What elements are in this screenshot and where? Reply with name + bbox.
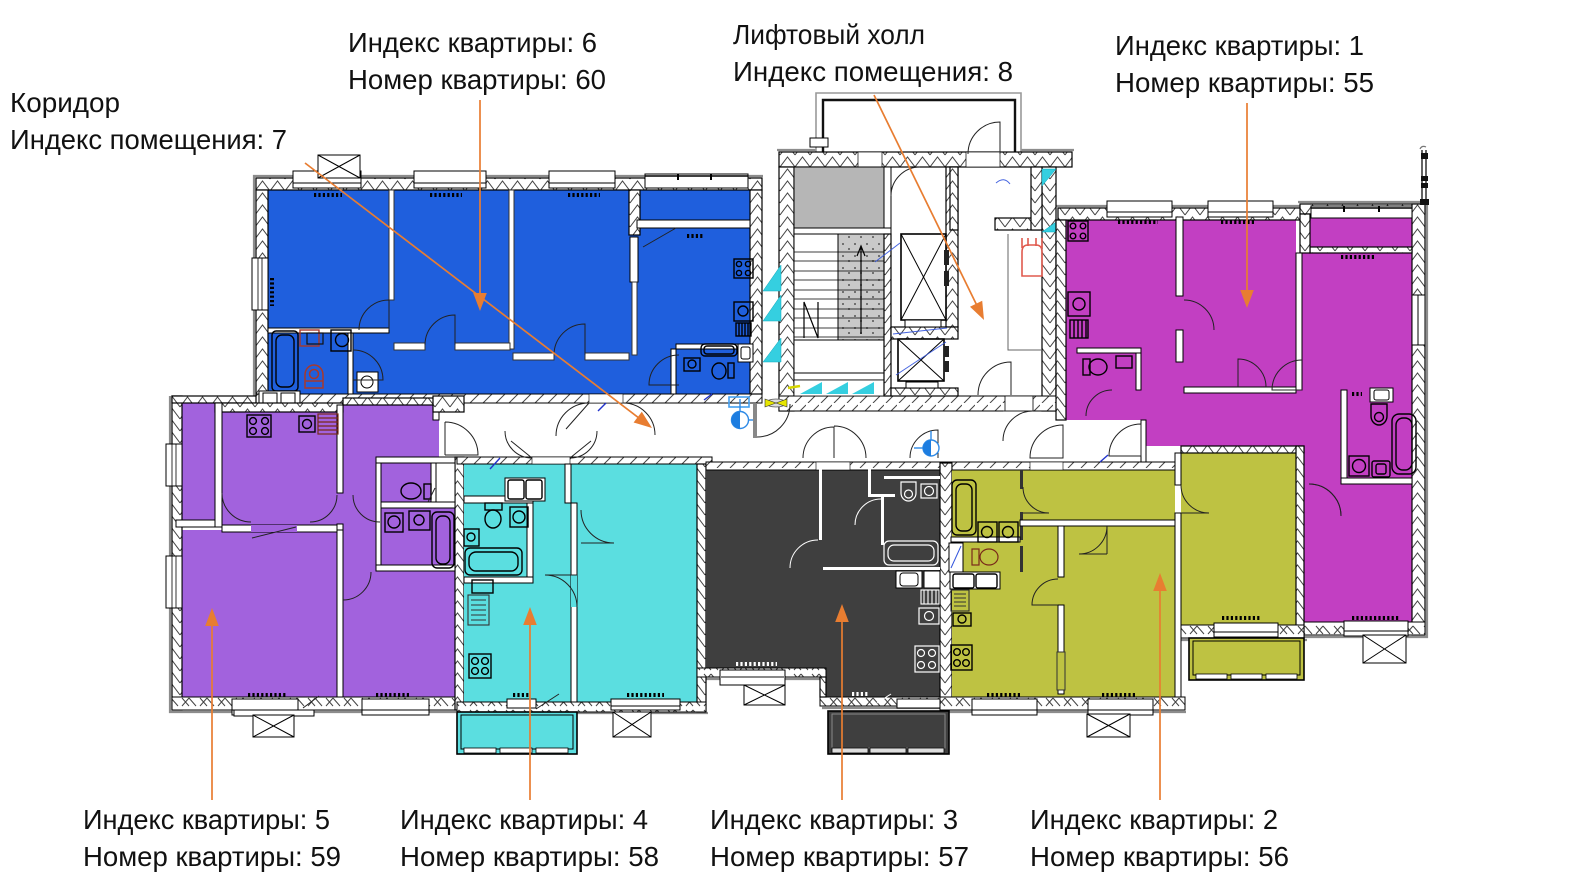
- svg-text:Индекс квартиры: 1: Индекс квартиры: 1: [1115, 30, 1364, 61]
- svg-text:Индекс квартиры: 2: Индекс квартиры: 2: [1030, 804, 1278, 835]
- svg-text:Номер квартиры: 58: Номер квартиры: 58: [400, 841, 659, 872]
- svg-text:Номер квартиры: 59: Номер квартиры: 59: [83, 841, 341, 872]
- svg-text:Лифтовый холл: Лифтовый холл: [733, 19, 925, 50]
- svg-text:Номер квартиры: 60: Номер квартиры: 60: [348, 64, 606, 95]
- svg-text:Индекс квартиры: 5: Индекс квартиры: 5: [83, 804, 330, 835]
- svg-text:Коридор: Коридор: [10, 87, 120, 118]
- svg-text:Индекс помещения: 7: Индекс помещения: 7: [10, 124, 287, 155]
- svg-text:Индекс квартиры: 4: Индекс квартиры: 4: [400, 804, 648, 835]
- svg-text:Номер квартиры: 57: Номер квартиры: 57: [710, 841, 969, 872]
- svg-text:Номер квартиры: 55: Номер квартиры: 55: [1115, 67, 1374, 98]
- svg-text:Индекс квартиры: 3: Индекс квартиры: 3: [710, 804, 958, 835]
- svg-text:Номер квартиры: 56: Номер квартиры: 56: [1030, 841, 1289, 872]
- svg-text:Индекс квартиры: 6: Индекс квартиры: 6: [348, 27, 597, 58]
- svg-text:Индекс помещения: 8: Индекс помещения: 8: [733, 56, 1013, 87]
